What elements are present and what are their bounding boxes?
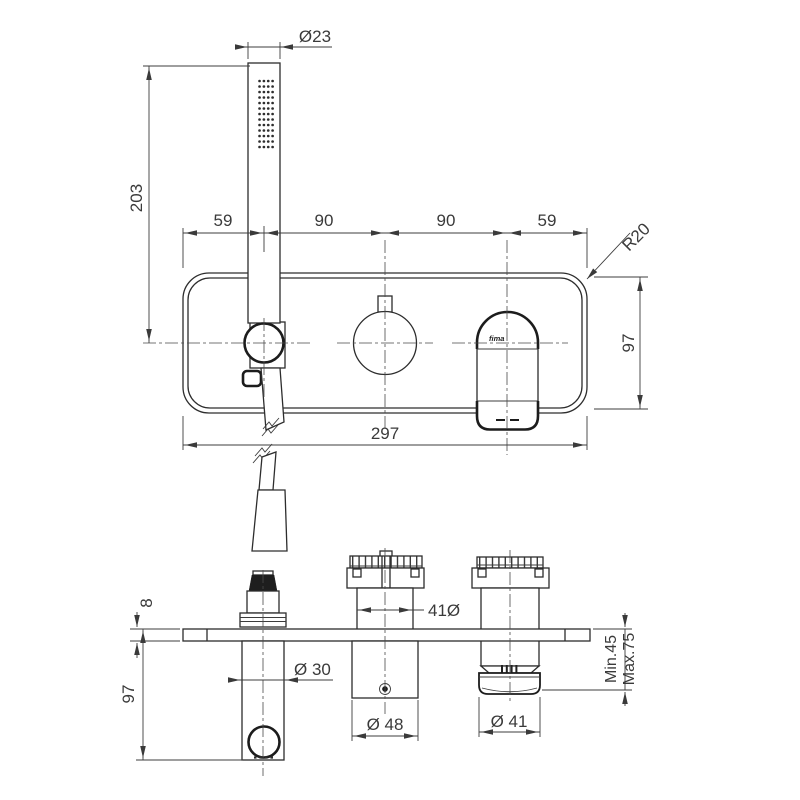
- dim-depth-max: Max.75: [621, 633, 638, 686]
- handshower-grip: [261, 368, 284, 430]
- dim-depth-min: Min.45: [603, 635, 620, 683]
- dim-plate-thickness: 8: [130, 598, 180, 658]
- dim-installation-depth: Min.45 Max.75: [542, 613, 638, 706]
- dim-body-height: 97: [119, 629, 243, 760]
- hose-segment: [259, 452, 276, 490]
- svg-text:Ø23: Ø23: [299, 27, 331, 46]
- handshower-hose-side: [252, 444, 287, 551]
- dim-spacing-2: 90: [315, 211, 334, 230]
- side-view: 8 97 Ø 30 41Ø: [119, 444, 638, 776]
- technical-drawing-page: fima Ø23: [0, 0, 800, 800]
- mixer-lever-side: [479, 666, 540, 694]
- svg-text:203: 203: [127, 184, 146, 212]
- lever-cap: [479, 673, 540, 694]
- dim-spacing-4: 59: [538, 211, 557, 230]
- wall-plate-side: [183, 629, 590, 641]
- dim-handle-diameter: Ø 41: [479, 697, 540, 737]
- svg-text:41Ø: 41Ø: [428, 601, 460, 620]
- dim-spacing-1: 59: [214, 211, 233, 230]
- dim-plate-height: 97: [594, 277, 648, 409]
- dim-spacing-chain: 59 90 90 59: [183, 211, 587, 268]
- svg-text:8: 8: [137, 598, 156, 607]
- svg-text:Ø 41: Ø 41: [491, 712, 528, 731]
- dim-corner-radius: R20: [587, 219, 654, 279]
- brand-label: fima: [489, 334, 504, 343]
- svg-text:Ø 48: Ø 48: [367, 715, 404, 734]
- diverter-rough-in: [347, 551, 424, 641]
- spout-outlet: [249, 727, 280, 758]
- grip-cone: [252, 490, 287, 551]
- dim-spacing-3: 90: [437, 211, 456, 230]
- svg-text:97: 97: [119, 685, 138, 704]
- mixer-rough-in: [472, 557, 549, 666]
- dim-handshower-diameter: Ø23: [236, 27, 332, 59]
- svg-text:R20: R20: [618, 219, 653, 254]
- svg-text:97: 97: [619, 334, 638, 353]
- hose-clip: [243, 371, 261, 386]
- svg-text:297: 297: [371, 424, 399, 443]
- front-view: fima Ø23: [127, 27, 654, 455]
- mixer-lever: fima: [477, 312, 538, 430]
- svg-text:Ø 30: Ø 30: [294, 660, 331, 679]
- shower-mixer-technical-drawing: fima Ø23: [0, 0, 800, 800]
